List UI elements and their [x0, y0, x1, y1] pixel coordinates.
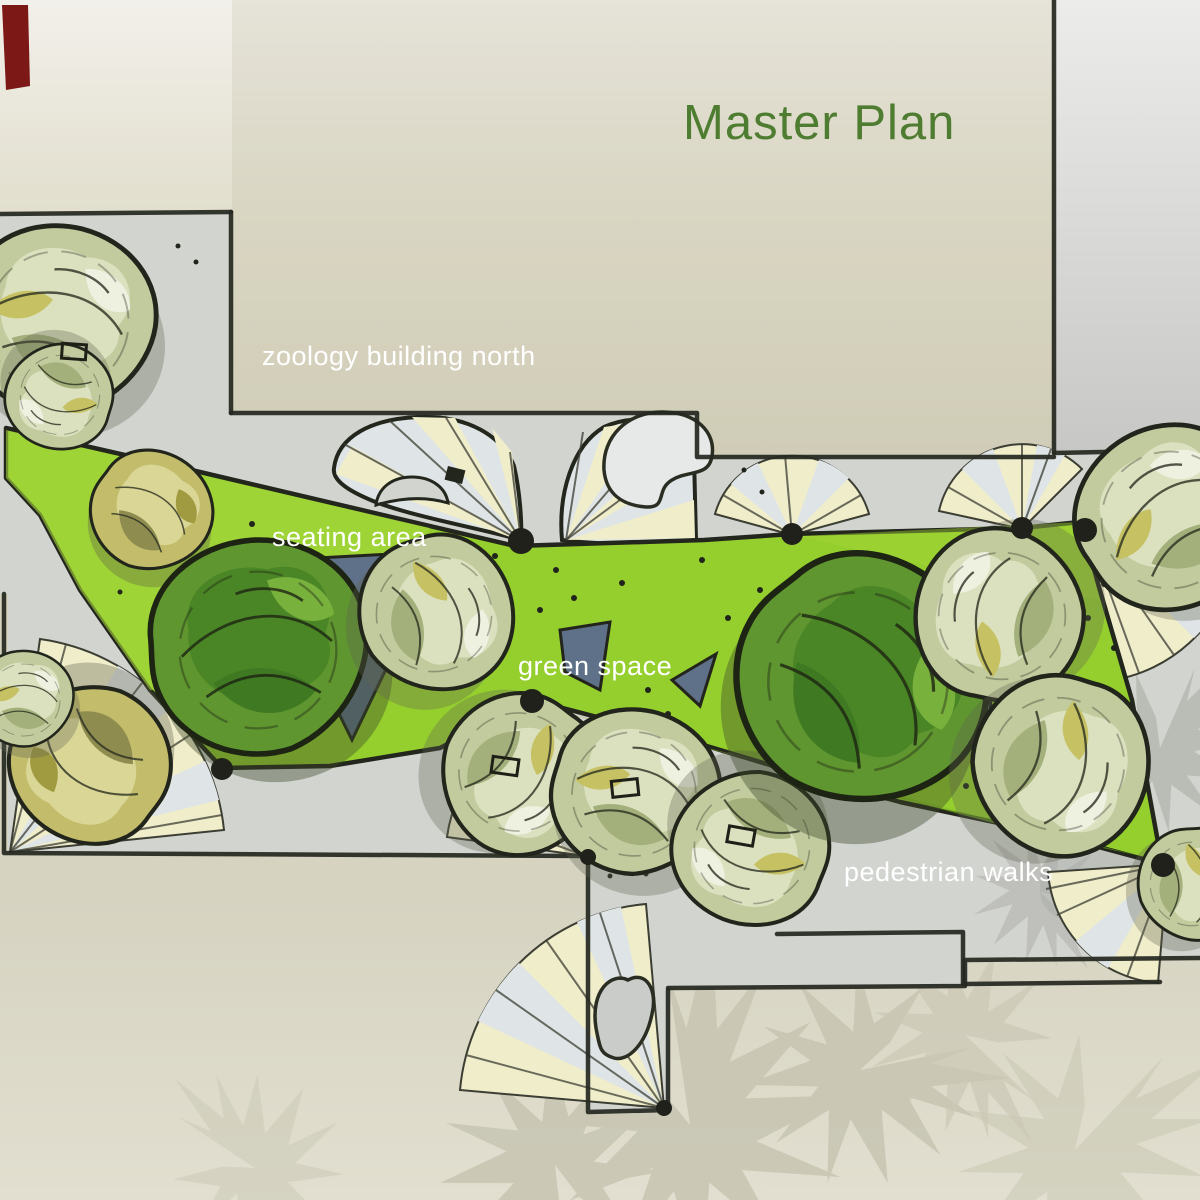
offsite-band — [1056, 0, 1200, 452]
label-zoology-building-north: zoology building north — [262, 341, 536, 372]
label-green-space: green space — [518, 651, 672, 682]
label-pedestrian-walks: pedestrian walks — [844, 857, 1053, 888]
corner-red-mark — [2, 5, 30, 90]
label-seating-area: seating area — [272, 522, 427, 553]
master-plan-slide: Master Plan zoology building north seati… — [0, 0, 1200, 1200]
building-footprint — [232, 0, 1055, 457]
page-title: Master Plan — [683, 95, 955, 151]
site-plan-drawing — [0, 0, 1200, 1200]
